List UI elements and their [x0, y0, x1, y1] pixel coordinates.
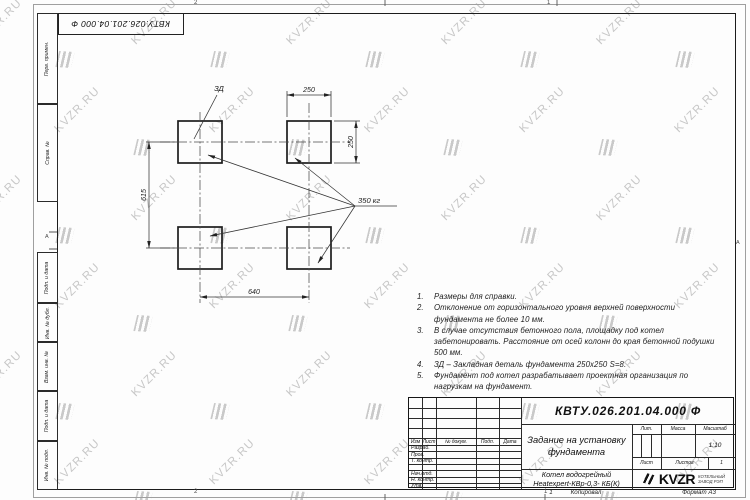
doc-number: КВТУ.026.201.04.000 Ф — [521, 398, 735, 424]
margin-box-inv-podl: Инв. № подл. — [37, 440, 58, 490]
zone-bottom-2: 2 — [194, 489, 197, 495]
watermark-text: KVZR.RU — [0, 0, 25, 47]
mass-label: Масса — [661, 424, 695, 434]
margin-label: Подп. и дата — [45, 262, 51, 294]
footer-copied: Копировал — [556, 489, 616, 496]
product-name: Котел водогрейный Heatexpert-КВр-0,3- КБ… — [521, 469, 632, 489]
margin-label: Инв. № дубл. — [45, 307, 51, 339]
drawing-sheet: KVZR.RUKVZR.RUKVZR.RUKVZR.RUKVZR.RUKVZR.… — [0, 0, 750, 500]
rev-col-podp: Подп. — [476, 438, 499, 445]
sheet-label: Лист — [632, 457, 661, 469]
note-item: 5.Фундамент под котел разрабатывает прое… — [417, 370, 720, 393]
sign-row-nach-otd: Нач.отд. — [411, 470, 436, 477]
zone-left-a: А — [45, 234, 49, 240]
zone-top-1: 1 — [547, 0, 550, 6]
watermark-text: KVZR.RU — [0, 173, 25, 223]
margin-box-sprav-no: Справ. № — [37, 103, 58, 202]
sheets-value: 1 — [708, 457, 735, 469]
top-doc-number-box: КВТУ.026.201.04.000 Ф — [58, 13, 184, 35]
kvzr-logo-icon — [642, 473, 656, 485]
kvzr-logo-text: KVZR — [659, 471, 695, 487]
margin-label: Инв. № подл. — [45, 449, 51, 481]
margin-label: Взам. инв. № — [45, 350, 51, 382]
margin-box-perv-primen: Перв. примен. — [37, 13, 58, 105]
footer-format: Формат А3 — [668, 489, 730, 496]
zone-top-2: 2 — [194, 0, 197, 6]
rev-col-data: Дата — [499, 438, 521, 445]
rev-col-list: Лист — [422, 438, 436, 445]
scale-label: Масштаб — [695, 424, 735, 434]
margin-box-podp-data-1: Подп. и дата — [37, 252, 58, 304]
zone-right-a: А — [736, 240, 740, 246]
margin-box-vzam-inv: Взам. инв. № — [37, 341, 58, 392]
notes-list: 1.Размеры для справки. 2.Отклонение от г… — [417, 291, 720, 393]
title-block: Изм Лист № докум. Подп. Дата Разраб. Про… — [408, 397, 734, 488]
margin-box-podp-data-2: Подп. и дата — [37, 390, 58, 442]
margin-label: Подп. и дата — [45, 400, 51, 432]
scale-value: 1:10 — [695, 434, 735, 457]
margin-label: Перв. примен. — [45, 42, 51, 76]
note-item: 1.Размеры для справки. — [417, 291, 720, 302]
sign-row-utv: Утв. — [411, 483, 436, 489]
sign-row-prov: Пров. — [411, 451, 436, 458]
drawing-title: Задание на установку фундамента — [523, 424, 630, 469]
note-item: 4.ЗД – Закладная деталь фундамента 250х2… — [417, 359, 720, 370]
margin-box-inv-dubl: Инв. № дубл. — [37, 302, 58, 343]
rev-col-docnum: № докум. — [436, 438, 476, 445]
footer-zone-num: 1 — [546, 489, 556, 496]
company-logo: KVZR КОТЕЛЬНЫЙ ЗАВОД РЭП — [632, 469, 735, 489]
top-doc-number: КВТУ.026.201.04.000 Ф — [71, 19, 170, 29]
rev-col-izm: Изм — [409, 438, 422, 445]
sheets-label: Листов — [661, 457, 708, 469]
watermark-text: KVZR.RU — [0, 349, 25, 399]
lit-label: Лит. — [632, 424, 661, 434]
note-item: 2.Отклонение от горизонтального уровня в… — [417, 302, 720, 325]
kvzr-logo-subtext: КОТЕЛЬНЫЙ ЗАВОД РЭП — [698, 474, 725, 485]
margin-label: Справ. № — [45, 141, 51, 165]
note-item: 3.В случае отсутствия бетонного пола, пл… — [417, 325, 720, 359]
